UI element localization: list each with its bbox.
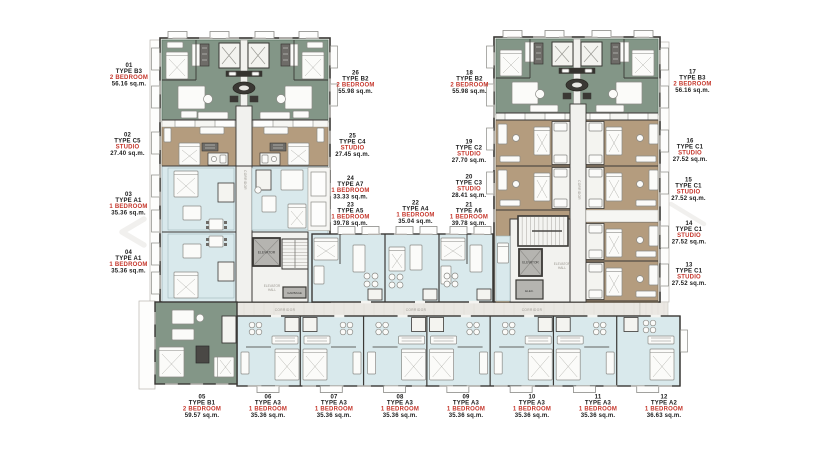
svg-text:17: 17 [689, 69, 697, 75]
svg-text:STUDIO: STUDIO [677, 190, 701, 196]
svg-text:1 BEDROOM: 1 BEDROOM [109, 204, 147, 210]
svg-text:1 BEDROOM: 1 BEDROOM [331, 188, 369, 194]
svg-text:07: 07 [330, 394, 338, 400]
svg-text:TYPE A3: TYPE A3 [387, 401, 414, 407]
svg-text:1 BEDROOM: 1 BEDROOM [109, 262, 147, 268]
svg-text:06: 06 [264, 394, 272, 400]
svg-text:TYPE A3: TYPE A3 [321, 401, 348, 407]
svg-text:TYPE B3: TYPE B3 [679, 76, 706, 82]
svg-text:28.41 sq.m.: 28.41 sq.m. [452, 193, 487, 199]
svg-text:TYPE A3: TYPE A3 [519, 401, 546, 407]
svg-text:13: 13 [685, 262, 693, 268]
svg-text:HALL: HALL [268, 288, 276, 292]
svg-text:TYPE A2: TYPE A2 [651, 401, 678, 407]
svg-text:TYPE C1: TYPE C1 [675, 184, 702, 190]
svg-text:55.98 sq.m.: 55.98 sq.m. [452, 89, 487, 95]
svg-text:16: 16 [686, 138, 694, 144]
svg-text:STUDIO: STUDIO [457, 152, 481, 158]
svg-text:STUDIO: STUDIO [341, 146, 365, 152]
svg-text:TYPE B3: TYPE B3 [116, 69, 143, 75]
svg-text:2 BEDROOM: 2 BEDROOM [336, 83, 374, 89]
svg-text:TYPE A7: TYPE A7 [337, 182, 364, 188]
svg-text:27.52 sq.m.: 27.52 sq.m. [673, 157, 708, 163]
svg-text:56.16 sq.m.: 56.16 sq.m. [675, 88, 710, 94]
svg-text:ELEVATOR: ELEVATOR [258, 251, 276, 255]
svg-text:CORRIDOR: CORRIDOR [275, 308, 296, 312]
svg-text:TYPE C5: TYPE C5 [114, 139, 141, 145]
svg-text:01: 01 [125, 63, 133, 69]
svg-text:56.16 sq.m.: 56.16 sq.m. [112, 81, 147, 87]
svg-text:2 BEDROOM: 2 BEDROOM [450, 83, 488, 89]
svg-text:TYPE B1: TYPE B1 [189, 401, 216, 407]
svg-text:55.98 sq.m.: 55.98 sq.m. [338, 89, 373, 95]
svg-text:1 BEDROOM: 1 BEDROOM [381, 407, 419, 413]
svg-text:TYPE B2: TYPE B2 [456, 77, 483, 83]
svg-text:1 BEDROOM: 1 BEDROOM [315, 407, 353, 413]
svg-text:STUDIO: STUDIO [457, 187, 481, 193]
svg-text:27.52 sq.m.: 27.52 sq.m. [672, 281, 707, 287]
svg-text:27.70 sq.m.: 27.70 sq.m. [452, 158, 487, 164]
svg-text:39.78 sq.m.: 39.78 sq.m. [333, 221, 368, 227]
svg-text:35.36 sq.m.: 35.36 sq.m. [111, 268, 146, 274]
svg-text:GARBAGE: GARBAGE [287, 291, 302, 295]
svg-text:33.33 sq.m.: 33.33 sq.m. [333, 194, 368, 200]
svg-text:ELEC.: ELEC. [525, 289, 534, 293]
svg-text:TYPE A6: TYPE A6 [456, 209, 483, 215]
svg-text:27.52 sq.m.: 27.52 sq.m. [672, 239, 707, 245]
svg-text:TYPE A1: TYPE A1 [115, 198, 142, 204]
svg-text:STUDIO: STUDIO [116, 145, 140, 151]
svg-text:26: 26 [352, 70, 360, 76]
svg-text:39.78 sq.m.: 39.78 sq.m. [452, 221, 487, 227]
svg-text:27.52 sq.m.: 27.52 sq.m. [671, 196, 706, 202]
svg-text:22: 22 [412, 200, 420, 206]
svg-text:35.36 sq.m.: 35.36 sq.m. [515, 413, 550, 419]
svg-text:36.63 sq.m.: 36.63 sq.m. [647, 413, 682, 419]
svg-text:04: 04 [125, 250, 133, 256]
svg-text:09: 09 [462, 394, 470, 400]
svg-text:1 BEDROOM: 1 BEDROOM [331, 215, 369, 221]
svg-text:1 BEDROOM: 1 BEDROOM [513, 407, 551, 413]
svg-text:TYPE A5: TYPE A5 [337, 209, 364, 215]
svg-text:STUDIO: STUDIO [678, 151, 702, 157]
svg-text:24: 24 [347, 176, 355, 182]
svg-text:STUDIO: STUDIO [677, 233, 701, 239]
svg-text:TYPE C1: TYPE C1 [676, 227, 703, 233]
svg-text:TYPE A3: TYPE A3 [453, 401, 480, 407]
svg-text:18: 18 [466, 70, 474, 76]
svg-text:21: 21 [465, 202, 473, 208]
svg-text:27.40 sq.m.: 27.40 sq.m. [110, 151, 145, 157]
svg-text:2 BEDROOM: 2 BEDROOM [110, 75, 148, 81]
svg-text:2 BEDROOM: 2 BEDROOM [673, 82, 711, 88]
svg-text:35.36 sq.m.: 35.36 sq.m. [111, 210, 146, 216]
svg-text:19: 19 [465, 139, 473, 145]
svg-text:1 BEDROOM: 1 BEDROOM [579, 407, 617, 413]
svg-text:10: 10 [528, 394, 536, 400]
svg-text:35.36 sq.m.: 35.36 sq.m. [581, 413, 616, 419]
svg-text:35.04 sq.m.: 35.04 sq.m. [398, 219, 433, 225]
svg-text:TYPE C2: TYPE C2 [456, 146, 483, 152]
svg-text:TYPE C1: TYPE C1 [676, 269, 703, 275]
svg-text:ELEVATOR: ELEVATOR [522, 261, 539, 265]
svg-text:STUDIO: STUDIO [677, 275, 701, 281]
svg-text:1 BEDROOM: 1 BEDROOM [447, 407, 485, 413]
svg-text:TYPE A3: TYPE A3 [255, 401, 282, 407]
svg-text:23: 23 [347, 202, 355, 208]
svg-text:TYPE A4: TYPE A4 [402, 207, 429, 213]
svg-text:1 BEDROOM: 1 BEDROOM [249, 407, 287, 413]
svg-text:14: 14 [685, 221, 693, 227]
svg-text:TYPE A1: TYPE A1 [115, 256, 142, 262]
svg-text:12: 12 [660, 394, 668, 400]
svg-text:59.57 sq.m.: 59.57 sq.m. [185, 413, 220, 419]
svg-text:HALL: HALL [558, 266, 566, 270]
svg-text:CORRIDOR: CORRIDOR [577, 180, 581, 200]
svg-text:1 BEDROOM: 1 BEDROOM [396, 213, 434, 219]
svg-text:08: 08 [396, 394, 404, 400]
svg-text:1 BEDROOM: 1 BEDROOM [645, 407, 683, 413]
svg-text:35.36 sq.m.: 35.36 sq.m. [449, 413, 484, 419]
svg-text:35.36 sq.m.: 35.36 sq.m. [317, 413, 352, 419]
svg-text:03: 03 [125, 192, 133, 198]
svg-text:15: 15 [685, 177, 693, 183]
svg-text:CORRIDOR: CORRIDOR [522, 308, 543, 312]
svg-text:11: 11 [595, 394, 602, 400]
svg-text:35.36 sq.m.: 35.36 sq.m. [251, 413, 286, 419]
svg-text:TYPE C1: TYPE C1 [677, 145, 704, 151]
svg-text:TYPE B2: TYPE B2 [342, 77, 369, 83]
svg-text:35.36 sq.m.: 35.36 sq.m. [383, 413, 418, 419]
svg-text:02: 02 [124, 132, 132, 138]
svg-text:CORRIDOR: CORRIDOR [243, 170, 247, 190]
svg-text:CORRIDOR: CORRIDOR [406, 308, 427, 312]
svg-text:TYPE C4: TYPE C4 [339, 140, 366, 146]
svg-text:2 BEDROOM: 2 BEDROOM [183, 407, 221, 413]
svg-text:05: 05 [198, 394, 206, 400]
svg-text:1 BEDROOM: 1 BEDROOM [450, 215, 488, 221]
svg-text:27.45 sq.m.: 27.45 sq.m. [335, 152, 370, 158]
svg-text:TYPE A3: TYPE A3 [585, 401, 612, 407]
svg-text:25: 25 [349, 133, 357, 139]
svg-text:20: 20 [465, 174, 473, 180]
svg-text:TYPE C3: TYPE C3 [456, 181, 483, 187]
